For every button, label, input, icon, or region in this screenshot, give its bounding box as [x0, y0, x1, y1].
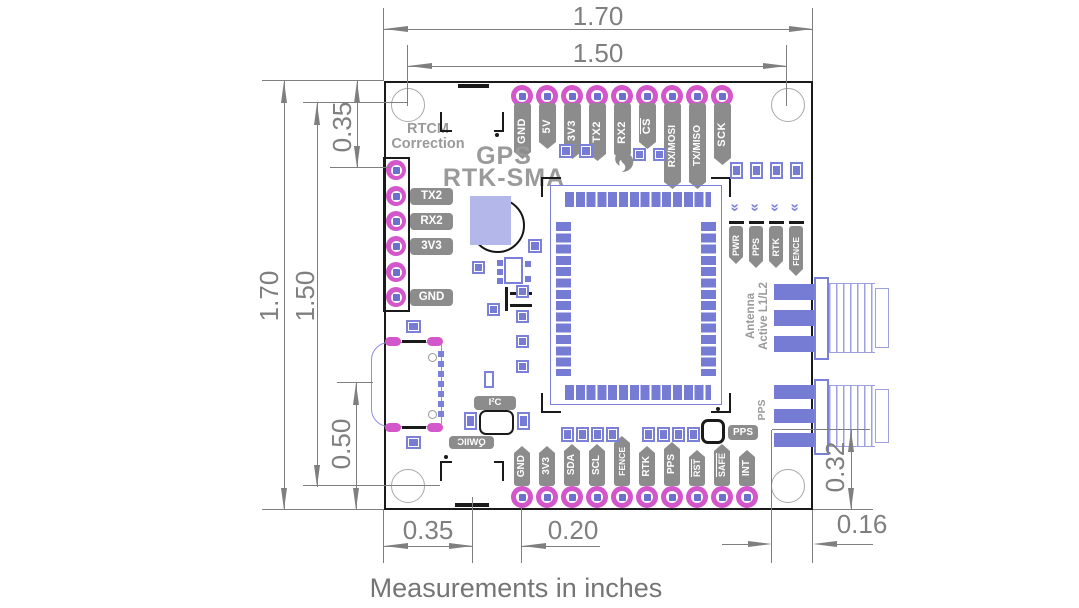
- usb-alignment-hole: [428, 410, 437, 419]
- corner-mark: [711, 177, 731, 197]
- smd-pad: [561, 427, 574, 442]
- pin-pad: [661, 486, 683, 508]
- pin-label-3v3b: 3V3: [539, 446, 555, 486]
- cap-symbol: [510, 304, 532, 307]
- extension-line: [303, 485, 440, 486]
- usb-pad: [385, 337, 401, 346]
- led-polarity-icon: «: [767, 203, 782, 211]
- pin-pad: [386, 287, 406, 307]
- smd-pad: [517, 412, 530, 430]
- dim-left-inner-label: 1.50: [292, 266, 318, 326]
- arrowhead: [522, 543, 546, 549]
- corner-mark: [541, 393, 561, 413]
- usb-pad: [427, 423, 443, 432]
- arrowhead: [813, 541, 837, 547]
- sma-connector-upper: [814, 277, 829, 360]
- extension-line: [383, 510, 384, 563]
- dim-left-top-label: 0.35: [329, 97, 355, 157]
- smd-pad: [406, 320, 421, 333]
- led-pad: [730, 162, 743, 179]
- smd-pad-column: [701, 222, 716, 376]
- smd-pad: [591, 427, 604, 442]
- antenna-label: AntennaActive L1/L2: [745, 269, 771, 363]
- extension-line: [383, 8, 384, 81]
- qwiic-label: QWIIC: [449, 436, 494, 449]
- smd-pad: [525, 261, 531, 267]
- led-cathode-mark: [789, 221, 804, 224]
- pin-label-tx-miso: TX/MISO: [689, 103, 706, 189]
- extension-line: [772, 429, 870, 430]
- led-label-fence: FENCE: [789, 226, 803, 276]
- smd-pad: [497, 269, 503, 275]
- pin-pad: [386, 211, 406, 231]
- led-label-rtk: RTK: [769, 226, 783, 268]
- sma-pad: [774, 336, 814, 352]
- usb-pad: [385, 423, 401, 432]
- pin-label-sck: SCK: [714, 103, 731, 165]
- smd-pad: [487, 303, 500, 316]
- sma-pad: [774, 409, 814, 423]
- pin-pad: [386, 262, 406, 282]
- dim-top-outer-label: 1.70: [568, 3, 628, 29]
- led-pad: [770, 162, 783, 179]
- sma-pad: [774, 310, 814, 326]
- dim-left-outer-label: 1.70: [256, 266, 282, 326]
- pin1-dot: [495, 133, 499, 137]
- sma-pad: [774, 433, 814, 447]
- sma-pad: [774, 385, 814, 399]
- pin-pad: [611, 486, 633, 508]
- smd-pad: [559, 144, 573, 158]
- rtcm-pin-label-gnd: GND: [410, 289, 453, 306]
- led-cathode-mark: [749, 221, 764, 224]
- smd-pad-column: [556, 222, 571, 376]
- smd-pad: [672, 427, 685, 442]
- pin-label-fence: FENCE: [614, 436, 630, 486]
- rtcm-pin-label-3v3: 3V3: [410, 238, 453, 255]
- corner-mark: [711, 393, 731, 413]
- dim-bottom-right-tail: [837, 544, 873, 545]
- mounting-hole-top-right: [771, 88, 805, 122]
- pps-button-label: PPS: [728, 425, 758, 440]
- arrowhead: [748, 541, 772, 547]
- mounting-hole-bottom-right: [771, 469, 805, 503]
- led-cathode-mark: [769, 221, 784, 224]
- usb-pad: [427, 337, 443, 346]
- sma-threads: [829, 283, 875, 353]
- pin-label-safe: SAFE: [714, 444, 730, 486]
- extension-line: [521, 503, 522, 563]
- smd-pad: [497, 260, 503, 266]
- arrowhead: [789, 26, 813, 32]
- pin-pad: [386, 160, 406, 180]
- corner-mark: [494, 461, 504, 481]
- regulator-ic: [504, 257, 523, 284]
- smd-pad: [528, 239, 542, 253]
- gps-module-footprint: [550, 185, 722, 405]
- led-polarity-icon: «: [787, 203, 802, 211]
- pin-label-rx-mosi: RX/MOSI: [664, 103, 681, 189]
- silkscreen-bar: [458, 84, 489, 88]
- extension-line: [472, 497, 473, 563]
- i2c-label: I²C: [474, 396, 516, 410]
- pin-pad: [386, 236, 406, 256]
- smd-pad: [464, 412, 477, 430]
- arrowhead: [314, 465, 320, 487]
- arrowhead: [384, 26, 408, 32]
- smd-pad: [576, 427, 589, 442]
- dim-top-inner-label: 1.50: [568, 40, 628, 66]
- smd-pad: [516, 310, 529, 323]
- dimensional-drawing: GND 5V 3V3 TX2 RX2 CS RX/MOSI TX/MISO SC…: [0, 0, 1079, 608]
- caption: Measurements in inches: [340, 573, 692, 604]
- smd-pad: [606, 427, 619, 442]
- pin1-dot: [716, 407, 720, 411]
- arrowhead: [353, 488, 359, 510]
- smd-pad-row: [565, 385, 711, 400]
- arrowhead: [281, 488, 287, 510]
- pin-label-gnd2: GND: [514, 446, 530, 486]
- sparkfun-flame-icon: [608, 143, 635, 176]
- smd-pad: [642, 427, 655, 442]
- led-label-pwr: PWR: [729, 226, 743, 264]
- pin-label-sda: SDA: [564, 444, 580, 486]
- led-polarity-icon: «: [727, 203, 742, 211]
- smd-pad: [525, 276, 531, 282]
- arrowhead: [763, 63, 787, 69]
- usb-pin-row: [438, 351, 444, 421]
- extension-line: [786, 45, 787, 106]
- pin-pad: [636, 486, 658, 508]
- dim-bottom-left-label: 0.35: [398, 517, 458, 543]
- smd-pad: [516, 360, 529, 373]
- smd-pad: [516, 285, 529, 298]
- usb-shield-mark: [402, 426, 426, 429]
- pin-pad: [586, 486, 608, 508]
- sma-cap: [875, 288, 889, 348]
- smd-pad: [653, 148, 666, 161]
- pin-label-int: INT: [739, 450, 755, 486]
- smd-pad: [579, 144, 593, 158]
- smd-pad: [406, 436, 421, 449]
- corner-mark: [440, 112, 452, 132]
- led-cathode-mark: [729, 221, 744, 224]
- dim-left-outer-line: [284, 81, 285, 510]
- extension-line: [812, 8, 813, 81]
- usb-alignment-hole: [428, 353, 437, 362]
- pin-pad: [386, 186, 406, 206]
- dim-left-bottom-label: 0.50: [328, 414, 354, 474]
- dim-bottom-right-line: [722, 544, 748, 545]
- cap-symbol: [505, 287, 508, 311]
- dim-right-bottom-label: 0.32: [822, 437, 848, 497]
- led-pad: [790, 162, 803, 179]
- pin-label-cs: CS: [639, 103, 656, 149]
- pin-label-rst: RST: [689, 450, 705, 486]
- arrowhead: [408, 63, 432, 69]
- rtcm-pin-label-rx2: RX2: [410, 213, 453, 230]
- smd-pad: [516, 335, 529, 348]
- corner-mark: [440, 461, 452, 481]
- pin-pad: [686, 486, 708, 508]
- smd-pad: [633, 148, 646, 161]
- extension-line: [330, 167, 390, 168]
- smd-pad: [497, 278, 503, 284]
- pin-pad: [561, 486, 583, 508]
- led-polarity-icon: «: [747, 203, 762, 211]
- sma-pad: [774, 284, 814, 300]
- small-component: [484, 371, 494, 388]
- crystal-pad: [470, 196, 511, 245]
- sma-cap: [875, 389, 889, 443]
- led-label-pps: PPS: [749, 226, 763, 268]
- corner-mark: [541, 177, 561, 197]
- extension-line: [407, 45, 408, 106]
- qwiic-connector: [479, 410, 514, 435]
- led-pad: [750, 162, 763, 179]
- smd-pad-row: [565, 192, 711, 207]
- pin-label-pps: PPS: [664, 442, 680, 486]
- pin-pad: [736, 486, 758, 508]
- smd-pad: [687, 427, 700, 442]
- corner-mark: [494, 112, 504, 132]
- arrowhead: [281, 81, 287, 103]
- extension-line: [813, 509, 873, 510]
- pps-sma-label: PPS: [756, 392, 768, 428]
- dim-bottom-right-label: 0.16: [832, 511, 892, 537]
- smd-pad: [657, 427, 670, 442]
- usb-shield-mark: [402, 340, 426, 343]
- pin-label-rtk: RTK: [639, 446, 655, 486]
- arrowhead: [353, 383, 359, 405]
- pin-pad: [536, 486, 558, 508]
- smd-pad: [472, 261, 485, 274]
- pin1-dot: [444, 455, 448, 459]
- dim-bottom-center-label: 0.20: [543, 517, 603, 543]
- arrowhead: [314, 103, 320, 125]
- extension-line: [812, 510, 813, 563]
- pin-pad: [711, 486, 733, 508]
- pps-button: [701, 419, 725, 444]
- pin-label-scl: SCL: [589, 444, 605, 486]
